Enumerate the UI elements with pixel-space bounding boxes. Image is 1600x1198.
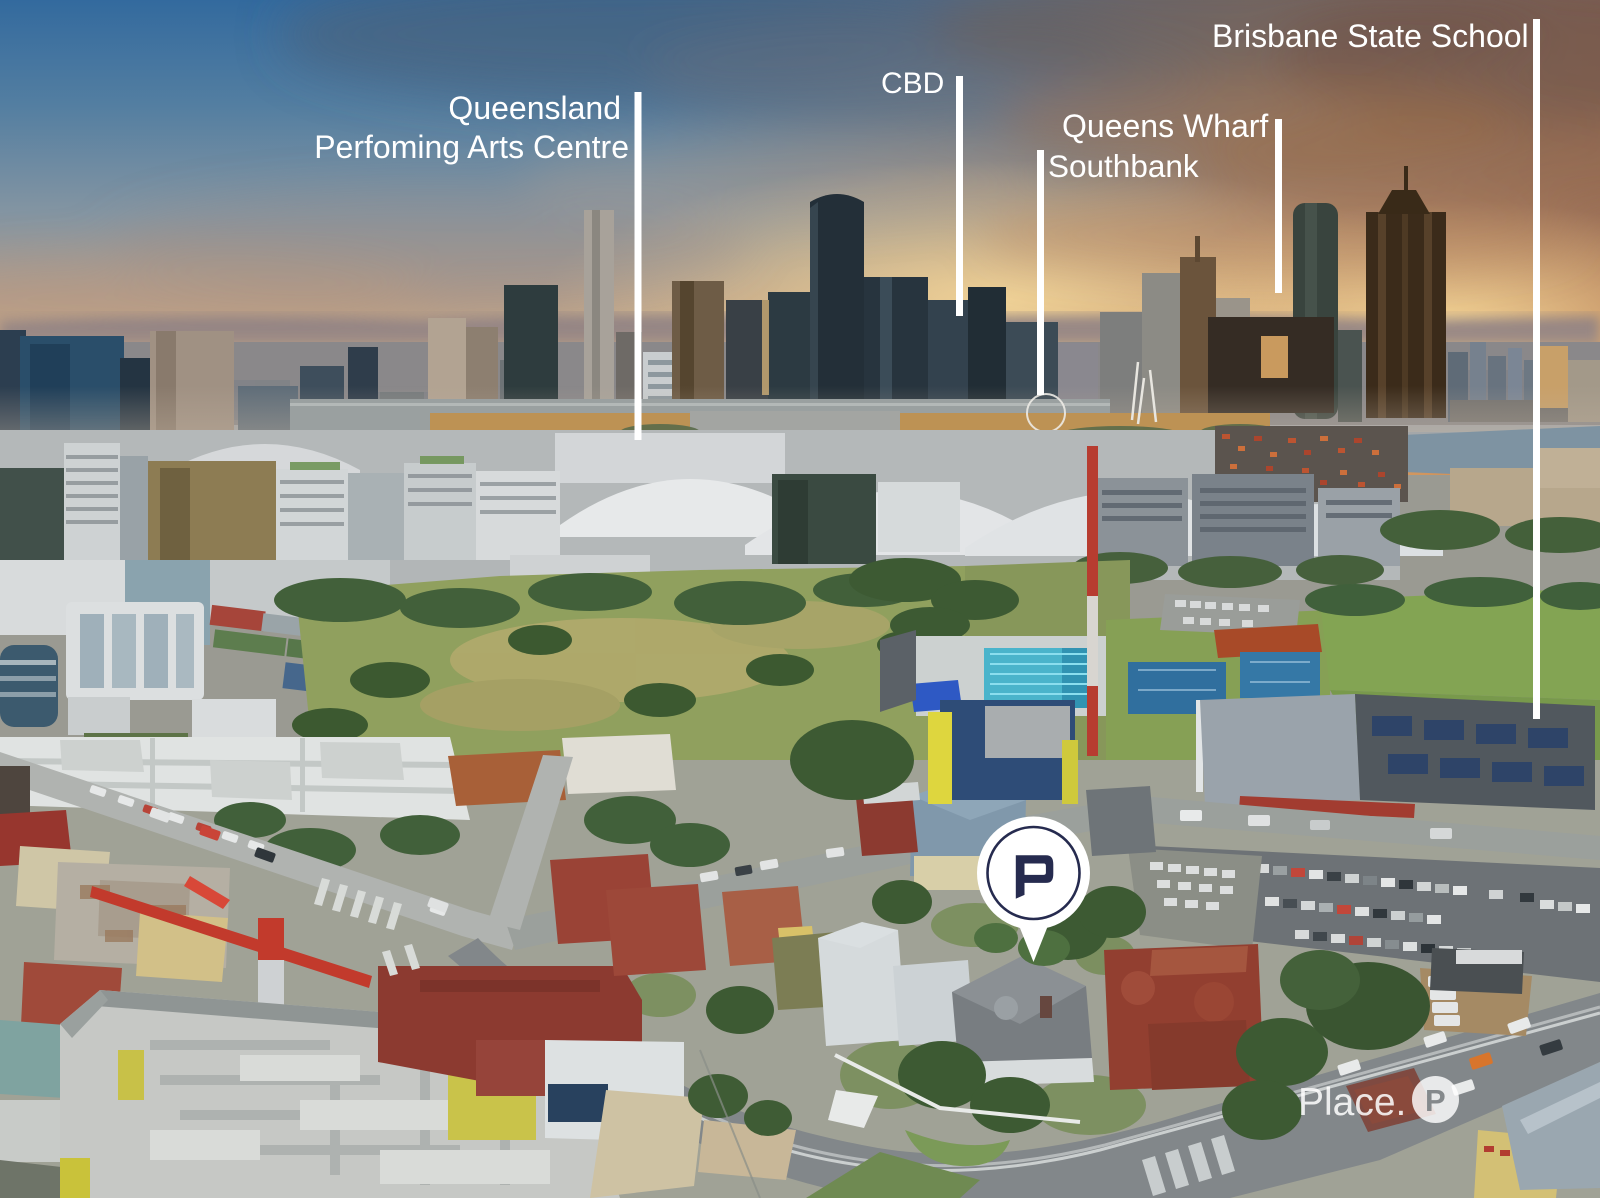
svg-text:CBD: CBD xyxy=(881,67,944,100)
svg-text:Perfoming Arts Centre: Perfoming Arts Centre xyxy=(314,129,629,165)
svg-text:Place.: Place. xyxy=(1298,1081,1406,1124)
svg-text:Queensland: Queensland xyxy=(448,90,621,126)
svg-text:Brisbane State School: Brisbane State School xyxy=(1212,18,1529,54)
svg-text:Queens Wharf: Queens Wharf xyxy=(1062,108,1268,144)
svg-text:P: P xyxy=(1425,1083,1446,1118)
svg-text:Southbank: Southbank xyxy=(1048,148,1199,184)
